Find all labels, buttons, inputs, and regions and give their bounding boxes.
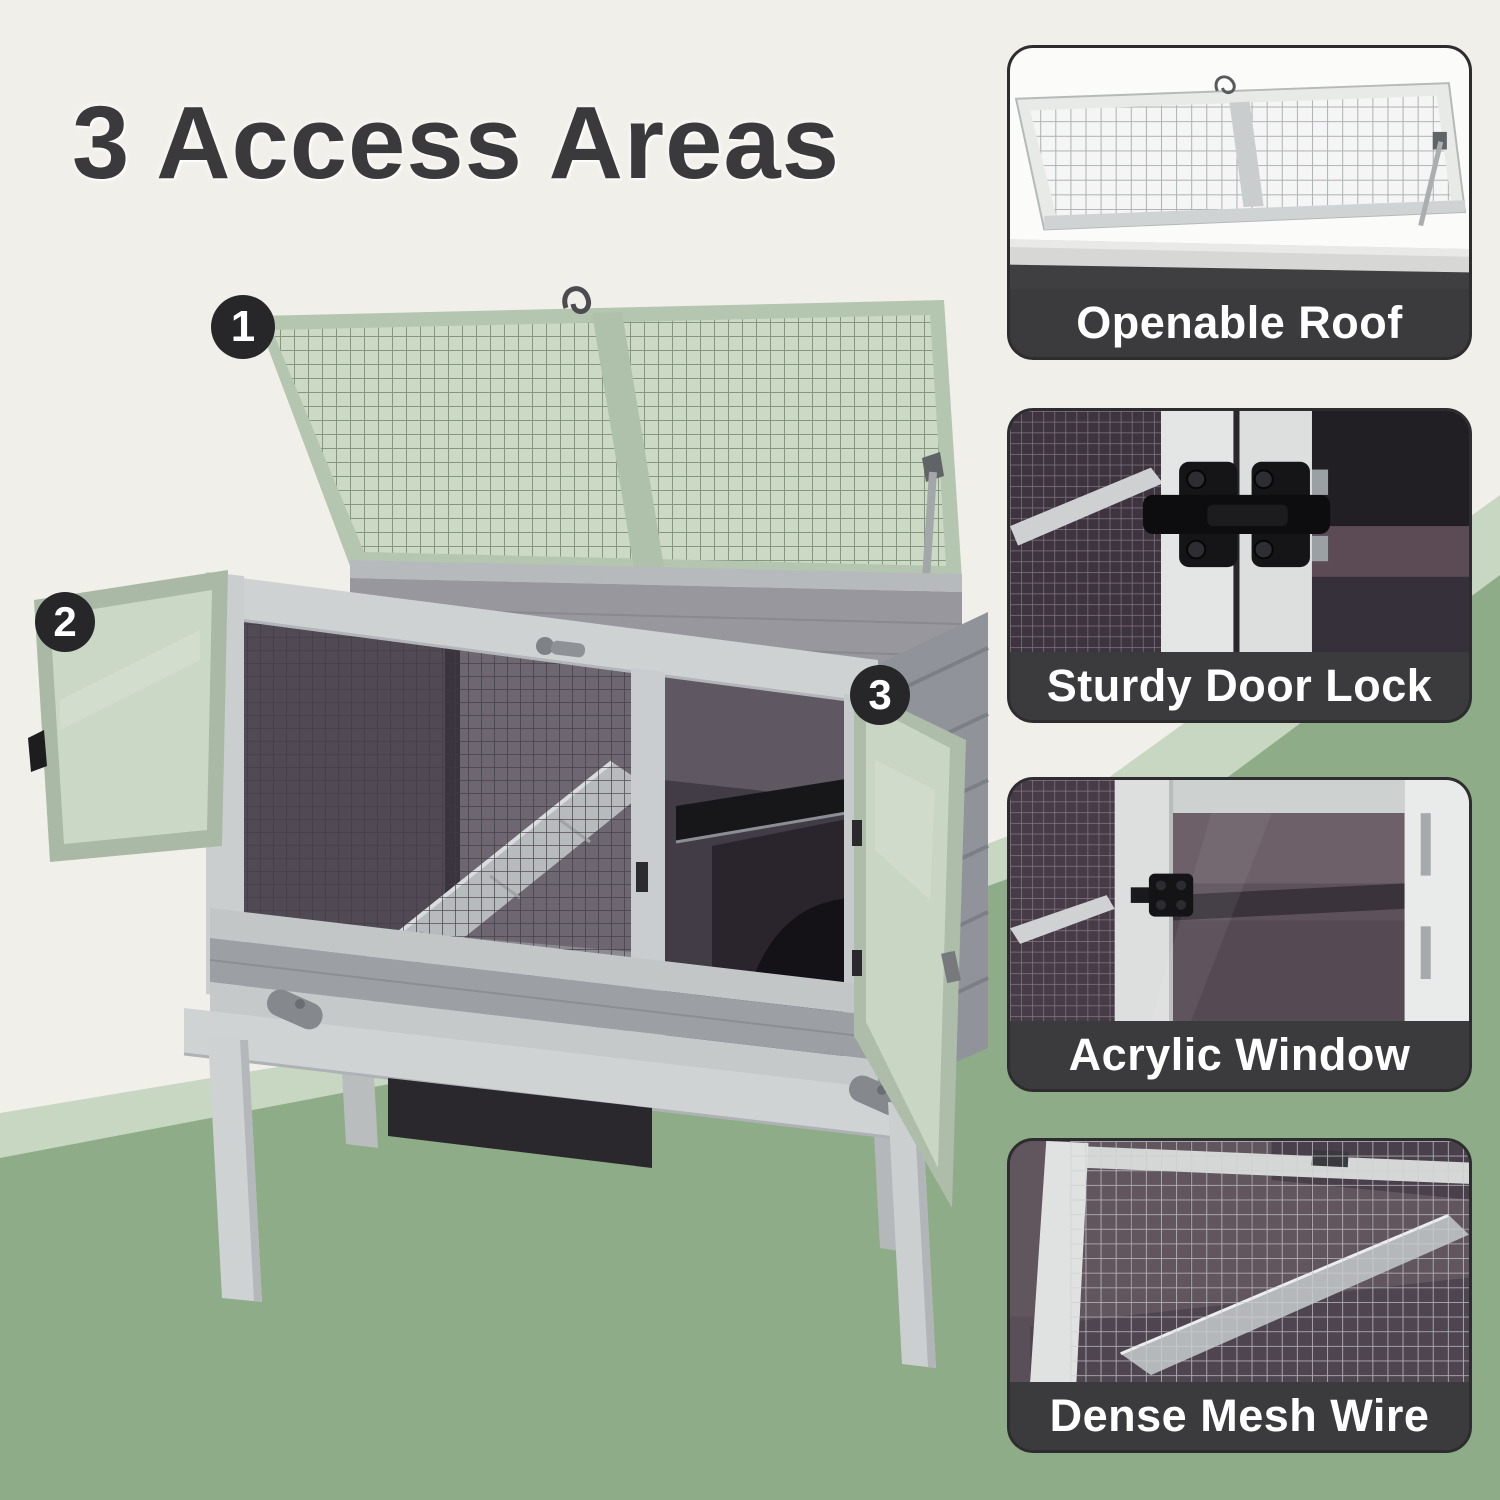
callout-badge-left-door: 2 bbox=[35, 592, 95, 652]
front-left-leg bbox=[208, 1036, 262, 1302]
badge-number: 1 bbox=[231, 302, 255, 352]
door-lock-photo bbox=[1010, 411, 1469, 652]
left-door-hinge-icon bbox=[28, 730, 47, 772]
feature-panel-acrylic-window: Acrylic Window bbox=[1007, 777, 1472, 1092]
badge-number: 3 bbox=[868, 671, 891, 719]
openable-roof-photo bbox=[1010, 48, 1469, 289]
page-title: 3 Access Areas bbox=[72, 84, 840, 202]
mesh-wire-photo bbox=[1010, 1141, 1469, 1382]
feature-panel-mesh-wire: Dense Mesh Wire bbox=[1007, 1138, 1472, 1453]
callout-badge-roof: 1 bbox=[211, 295, 275, 359]
callout-badge-right-door: 3 bbox=[850, 665, 910, 725]
feature-caption: Dense Mesh Wire bbox=[1010, 1382, 1469, 1450]
product-infographic: 3 Access Areas 1 2 3 Openable Roof bbox=[0, 0, 1500, 1500]
acrylic-window-photo bbox=[1010, 780, 1469, 1021]
roof-latch-hook-icon bbox=[565, 289, 589, 312]
feature-panel-door-lock: Sturdy Door Lock bbox=[1007, 408, 1472, 723]
center-door-lock bbox=[636, 862, 648, 892]
window-hinge-icon bbox=[1149, 874, 1193, 917]
feature-caption: Openable Roof bbox=[1010, 289, 1469, 357]
feature-panel-openable-roof: Openable Roof bbox=[1007, 45, 1472, 360]
feature-caption: Sturdy Door Lock bbox=[1010, 652, 1469, 720]
badge-number: 2 bbox=[53, 598, 76, 646]
feature-caption: Acrylic Window bbox=[1010, 1021, 1469, 1089]
